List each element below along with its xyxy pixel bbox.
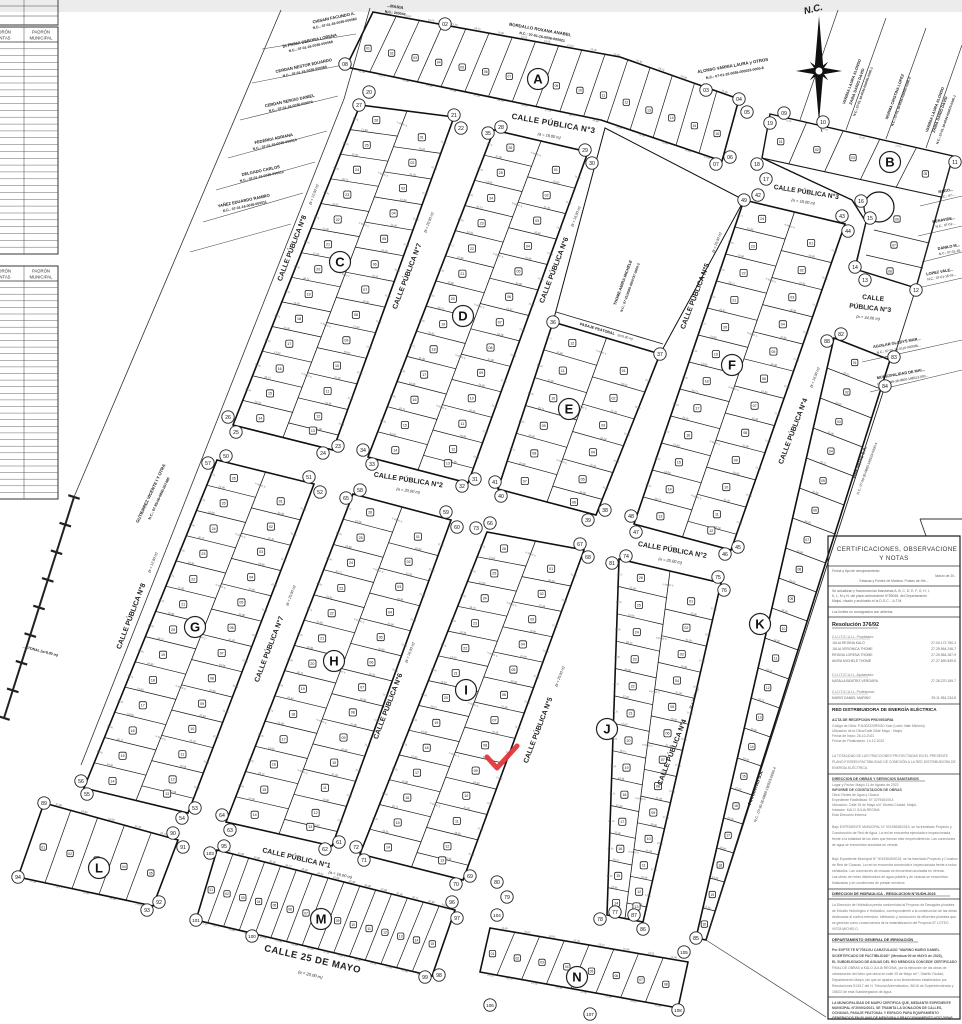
svg-text:19: 19: [710, 893, 714, 897]
svg-text:44: 44: [845, 229, 851, 235]
svg-text:155/22 de esta Subdelegación d: 155/22 de esta Subdelegación de Agua.: [832, 990, 892, 994]
svg-text:señalados. Las conexiones de c: señalados. Las conexiones de cloacas se …: [832, 869, 946, 873]
svg-text:09: 09: [342, 736, 346, 740]
svg-text:04: 04: [591, 451, 595, 455]
svg-text:06: 06: [762, 377, 766, 381]
svg-text:06: 06: [373, 263, 377, 267]
svg-text:EL SUBDELEGADO DE AGUAS DEL RI: EL SUBDELEGADO DE AGUAS DEL RIO MENDOZA …: [832, 960, 957, 964]
svg-text:NATALIA BEATRIZ VERGARA: NATALIA BEATRIZ VERGARA: [832, 679, 879, 683]
svg-text:12,00: 12,00: [610, 765, 617, 768]
svg-text:11: 11: [461, 422, 465, 426]
svg-text:12: 12: [570, 341, 574, 345]
svg-text:22: 22: [330, 612, 334, 616]
svg-text:27-25.564.287-9: 27-25.564.287-9: [931, 653, 956, 657]
svg-text:02: 02: [612, 396, 616, 400]
svg-text:07: 07: [805, 538, 809, 542]
svg-text:D: D: [458, 309, 467, 324]
svg-text:62: 62: [322, 847, 328, 853]
svg-text:05: 05: [379, 635, 383, 639]
svg-text:04: 04: [388, 610, 392, 614]
svg-text:97: 97: [454, 916, 460, 922]
svg-text:Expediente Factibilidad: N° 02: Expediente Factibilidad: N° 0279453/014: [832, 798, 894, 802]
svg-text:10: 10: [578, 89, 582, 93]
svg-text:04: 04: [122, 865, 126, 869]
svg-text:11: 11: [642, 864, 646, 868]
svg-text:Por EXPTE TE N°705119-I CARATU: Por EXPTE TE N°705119-I CARATULADO "MARI…: [832, 948, 940, 952]
svg-text:frente a la totalidad de los l: frente a la totalidad de los lotes que f…: [832, 837, 955, 841]
svg-text:CERTIFICACIONES, OBSERVACIONE: CERTIFICACIONES, OBSERVACIONE: [837, 546, 957, 553]
svg-text:52: 52: [317, 490, 323, 496]
svg-text:07: 07: [523, 479, 527, 483]
svg-text:101: 101: [192, 918, 200, 923]
svg-text:14: 14: [111, 779, 115, 783]
svg-text:02: 02: [407, 560, 411, 564]
svg-text:Obra: Redes de Agua y Cloaca: Obra: Redes de Agua y Cloaca: [832, 793, 879, 797]
svg-text:06: 06: [369, 661, 373, 665]
svg-text:08: 08: [351, 711, 355, 715]
svg-text:INFORME DE CONSTATACIÓN DE OBR: INFORME DE CONSTATACIÓN DE OBRAS: [832, 787, 902, 792]
svg-text:14: 14: [852, 265, 858, 271]
svg-text:81: 81: [609, 561, 615, 567]
svg-text:13: 13: [399, 935, 403, 939]
svg-text:106: 106: [486, 1003, 494, 1008]
svg-text:21: 21: [320, 637, 324, 641]
svg-text:01: 01: [689, 600, 693, 604]
svg-text:82: 82: [838, 332, 844, 338]
svg-text:REGINA LORENA THOME: REGINA LORENA THOME: [832, 653, 873, 657]
svg-text:51: 51: [306, 475, 312, 481]
svg-text:68: 68: [585, 555, 591, 561]
svg-text:Marzo de 20..: Marzo de 20..: [935, 574, 956, 578]
svg-text:09: 09: [542, 424, 546, 428]
svg-text:06: 06: [614, 974, 618, 978]
svg-text:21: 21: [629, 712, 633, 716]
svg-text:08: 08: [483, 744, 487, 748]
svg-text:13: 13: [658, 515, 662, 519]
svg-text:02: 02: [269, 525, 273, 529]
svg-text:13: 13: [165, 792, 169, 796]
svg-text:14: 14: [393, 449, 397, 453]
svg-text:55: 55: [84, 792, 90, 798]
svg-text:19: 19: [714, 352, 718, 356]
svg-text:28: 28: [498, 125, 504, 131]
svg-text:15: 15: [403, 423, 407, 427]
svg-text:15: 15: [430, 942, 434, 946]
svg-text:58: 58: [357, 488, 363, 494]
svg-text:18: 18: [754, 162, 760, 168]
svg-text:PADRÓN: PADRÓN: [0, 30, 11, 35]
svg-text:22: 22: [336, 218, 340, 222]
svg-text:80: 80: [494, 880, 500, 886]
svg-text:20: 20: [451, 297, 455, 301]
svg-text:JULIA REGINA KALO: JULIA REGINA KALO: [832, 641, 865, 645]
svg-text:41: 41: [492, 480, 498, 486]
svg-text:MUNICIPAL: MUNICIPAL: [29, 275, 53, 280]
svg-text:10: 10: [190, 727, 194, 731]
svg-text:27-27.690.839-5: 27-27.690.839-5: [931, 659, 956, 663]
svg-text:19: 19: [161, 653, 165, 657]
svg-text:38: 38: [602, 508, 608, 514]
svg-text:11: 11: [602, 93, 606, 97]
svg-text:37: 37: [657, 352, 663, 358]
svg-text:75: 75: [715, 575, 721, 581]
svg-text:09: 09: [555, 84, 559, 88]
svg-text:26: 26: [225, 415, 231, 421]
svg-text:12: 12: [316, 415, 320, 419]
svg-text:03: 03: [241, 896, 245, 900]
svg-text:03: 03: [703, 88, 709, 94]
svg-text:H: H: [329, 654, 338, 669]
svg-text:ENERGÍA ELÉCTRICA.: ENERGÍA ELÉCTRICA.: [832, 765, 868, 770]
svg-text:15: 15: [742, 775, 746, 779]
svg-text:Los límites no consignados son: Los límites no consignados son abiertos.: [832, 610, 893, 614]
svg-text:16: 16: [272, 763, 276, 767]
svg-text:Se actualizan y fraccionan las: Se actualizan y fraccionan las Manzanas …: [832, 589, 930, 593]
svg-text:Bajo EXPEDIENTE MUNICIPAL N° 0: Bajo EXPEDIENTE MUNICIPAL N° 00193638/20…: [832, 825, 952, 829]
svg-text:17: 17: [287, 342, 291, 346]
svg-text:24: 24: [760, 217, 764, 221]
svg-text:22: 22: [742, 271, 746, 275]
svg-text:12: 12: [314, 811, 318, 815]
svg-text:09: 09: [336, 919, 340, 923]
svg-text:K, L, M y N, del plano anteced: K, L, M y N, del plano antecedente N°590…: [832, 594, 927, 598]
svg-text:16: 16: [278, 367, 282, 371]
svg-text:10: 10: [335, 364, 339, 368]
svg-text:06: 06: [502, 693, 506, 697]
svg-text:13: 13: [311, 429, 315, 433]
svg-text:29-11.951.234-5: 29-11.951.234-5: [931, 696, 956, 700]
svg-text:11: 11: [326, 389, 330, 393]
svg-text:AKIRA MICHELE THOME: AKIRA MICHELE THOME: [832, 659, 872, 663]
svg-text:de Red de Cloacas. La red se e: de Red de Cloacas. La red se encuentra c…: [832, 863, 957, 867]
svg-text:06: 06: [484, 70, 488, 74]
svg-text:13: 13: [647, 108, 651, 112]
svg-text:03: 03: [680, 652, 684, 656]
svg-text:18: 18: [705, 379, 709, 383]
svg-text:S/CERTIFICADO DE FACTIBILIDAD": S/CERTIFICADO DE FACTIBILIDAD" (Mendoza …: [832, 954, 943, 958]
svg-text:04: 04: [781, 323, 785, 327]
svg-text:12: 12: [913, 288, 919, 294]
svg-text:Fecha de Finalización: 14-12-2: Fecha de Finalización: 14-12-2022: [832, 739, 884, 743]
svg-text:01: 01: [279, 500, 283, 504]
svg-text:10: 10: [351, 923, 355, 927]
svg-text:24: 24: [212, 527, 216, 531]
svg-text:03: 03: [837, 420, 841, 424]
svg-text:10: 10: [551, 397, 555, 401]
svg-text:16: 16: [858, 199, 864, 205]
svg-text:02: 02: [225, 892, 229, 896]
svg-text:48: 48: [628, 514, 634, 520]
svg-text:ACTA DE RECEPCION PROVISORIA: ACTA DE RECEPCION PROVISORIA: [832, 718, 894, 722]
svg-text:24: 24: [489, 196, 493, 200]
svg-text:99: 99: [422, 975, 428, 981]
svg-text:14: 14: [386, 846, 390, 850]
svg-text:67: 67: [577, 542, 583, 548]
svg-text:DEPARTAMENTO GENERAL DE IRRIGA: DEPARTAMENTO GENERAL DE IRRIGACIÓN: [832, 937, 913, 942]
svg-text:se generan como consecuencia d: se generan como consecuencia de la mater…: [832, 921, 949, 925]
svg-text:02: 02: [800, 268, 804, 272]
svg-text:25: 25: [233, 430, 239, 436]
svg-text:04: 04: [829, 449, 833, 453]
svg-text:21: 21: [732, 298, 736, 302]
svg-text:22: 22: [631, 685, 635, 689]
svg-text:03: 03: [397, 585, 401, 589]
svg-text:92: 92: [156, 900, 162, 906]
svg-text:C.U.I.T./C.U.I.L. Apoderado:: C.U.I.T./C.U.I.L. Apoderado:: [832, 673, 874, 677]
svg-text:05: 05: [273, 904, 277, 908]
svg-text:15: 15: [268, 392, 272, 396]
svg-text:04: 04: [257, 900, 261, 904]
svg-text:25,71: 25,71: [617, 573, 624, 576]
svg-text:03: 03: [601, 423, 605, 427]
svg-text:103: 103: [206, 851, 214, 856]
svg-text:20: 20: [366, 90, 372, 96]
svg-text:16: 16: [734, 804, 738, 808]
svg-text:02: 02: [815, 148, 819, 152]
svg-text:02: 02: [410, 161, 414, 165]
svg-text:01: 01: [420, 136, 424, 140]
svg-text:de Estudio Hidrológico e Hidrá: de Estudio Hidrológico e Hidráulico, cor…: [832, 909, 957, 913]
svg-text:06: 06: [288, 908, 292, 912]
svg-text:B: B: [885, 155, 894, 170]
svg-text:MUNICIPAL: MUNICIPAL: [29, 36, 53, 41]
svg-text:G: G: [190, 620, 200, 635]
svg-text:13: 13: [440, 859, 444, 863]
svg-text:25: 25: [222, 502, 226, 506]
svg-text:01: 01: [809, 241, 813, 245]
svg-text:108: 108: [674, 1008, 682, 1013]
svg-text:14: 14: [614, 901, 618, 905]
svg-text:06: 06: [666, 732, 670, 736]
svg-text:05: 05: [924, 172, 928, 176]
svg-text:18: 18: [622, 793, 626, 797]
svg-text:20: 20: [703, 922, 707, 926]
svg-text:95: 95: [221, 844, 227, 850]
svg-text:RENTAS: RENTAS: [0, 36, 11, 41]
svg-text:de agua se encuentran anuladas: de agua se encuentran anuladas en vereda…: [832, 843, 898, 847]
svg-text:32: 32: [459, 484, 465, 490]
svg-text:02: 02: [68, 852, 72, 856]
svg-text:42: 42: [755, 193, 761, 199]
svg-text:15: 15: [121, 754, 125, 758]
svg-text:12: 12: [709, 529, 713, 533]
svg-text:21: 21: [181, 603, 185, 607]
svg-text:07: 07: [360, 686, 364, 690]
svg-text:Resoluciones 513/17 del H. Tri: Resoluciones 513/17 del H. Tribunal Admi…: [832, 984, 954, 988]
svg-text:03: 03: [790, 296, 794, 300]
svg-text:105: 105: [680, 950, 688, 955]
svg-text:20: 20: [316, 268, 320, 272]
svg-text:10: 10: [470, 397, 474, 401]
svg-text:10: 10: [820, 120, 826, 126]
svg-text:31: 31: [472, 477, 478, 483]
svg-text:PADRÓN: PADRÓN: [32, 269, 50, 274]
svg-text:04: 04: [437, 61, 441, 65]
svg-text:12: 12: [766, 686, 770, 690]
svg-text:69: 69: [467, 874, 473, 880]
svg-text:25: 25: [492, 572, 496, 576]
svg-text:24,35: 24,35: [608, 820, 615, 823]
svg-text:07: 07: [493, 718, 497, 722]
svg-text:03: 03: [540, 961, 544, 965]
svg-text:33: 33: [369, 462, 375, 468]
svg-text:15: 15: [262, 788, 266, 792]
svg-text:34: 34: [360, 448, 366, 454]
svg-text:08: 08: [354, 313, 358, 317]
svg-text:02: 02: [390, 51, 394, 55]
svg-text:73: 73: [473, 526, 479, 532]
svg-text:88: 88: [824, 339, 830, 345]
svg-text:PLANO POSEEN FACTIBILIDAD DE C: PLANO POSEEN FACTIBILIDAD DE CONEXIÓN A …: [832, 759, 957, 764]
svg-text:20: 20: [627, 739, 631, 743]
svg-text:21: 21: [451, 113, 457, 119]
svg-text:10: 10: [647, 837, 651, 841]
svg-text:Las obras de redes distribuido: Las obras de redes distribuidora de agua…: [832, 875, 948, 879]
svg-text:04: 04: [675, 679, 679, 683]
svg-text:01: 01: [366, 47, 370, 51]
svg-text:05: 05: [771, 350, 775, 354]
svg-text:12,00: 12,00: [606, 875, 613, 878]
svg-text:78: 78: [597, 917, 603, 923]
svg-text:01: 01: [549, 567, 553, 571]
svg-text:23: 23: [751, 244, 755, 248]
svg-text:04: 04: [249, 575, 253, 579]
svg-text:30: 30: [589, 161, 595, 167]
svg-text:14: 14: [253, 813, 257, 817]
svg-text:12: 12: [383, 931, 387, 935]
svg-text:13: 13: [758, 716, 762, 720]
svg-text:02: 02: [845, 390, 849, 394]
svg-text:01: 01: [491, 952, 495, 956]
svg-text:21: 21: [454, 671, 458, 675]
svg-text:OCHAVAS, PASAJE PEATONAL Y ESP: OCHAVAS, PASAJE PEATONAL Y ESPACIO PARA …: [832, 1011, 939, 1015]
svg-text:01: 01: [779, 140, 783, 144]
svg-text:11: 11: [455, 819, 459, 823]
svg-text:12: 12: [624, 101, 628, 105]
svg-text:06: 06: [727, 155, 733, 161]
svg-text:23: 23: [345, 193, 349, 197]
svg-text:26: 26: [374, 118, 378, 122]
svg-text:23: 23: [339, 586, 343, 590]
svg-text:15: 15: [677, 461, 681, 465]
svg-text:MARIO DANIEL MARINO: MARIO DANIEL MARINO: [832, 696, 871, 700]
svg-text:04: 04: [521, 643, 525, 647]
svg-text:11: 11: [952, 160, 957, 166]
svg-text:16: 16: [715, 132, 719, 136]
svg-text:03: 03: [851, 156, 855, 160]
svg-text:27-28.270.159-7: 27-28.270.159-7: [931, 679, 956, 683]
svg-text:14: 14: [670, 116, 674, 120]
svg-text:17: 17: [282, 738, 286, 742]
svg-text:14: 14: [415, 938, 419, 942]
svg-text:07: 07: [507, 75, 511, 79]
svg-text:24,35: 24,35: [612, 710, 619, 713]
svg-text:13: 13: [446, 462, 450, 466]
svg-text:10: 10: [782, 627, 786, 631]
svg-text:10: 10: [464, 794, 468, 798]
svg-text:07: 07: [498, 321, 502, 325]
svg-text:17: 17: [415, 771, 419, 775]
svg-text:05: 05: [460, 65, 464, 69]
svg-text:25,71: 25,71: [613, 683, 620, 686]
svg-text:07: 07: [220, 651, 224, 655]
svg-text:100: 100: [248, 934, 256, 939]
svg-text:Y NOTAS: Y NOTAS: [879, 555, 908, 562]
svg-text:17: 17: [422, 373, 426, 377]
svg-text:09: 09: [474, 769, 478, 773]
svg-text:16: 16: [618, 847, 622, 851]
svg-text:C: C: [335, 255, 345, 270]
svg-text:07: 07: [304, 911, 308, 915]
svg-text:22: 22: [463, 646, 467, 650]
svg-text:urbanización del loteo que ubi: urbanización del loteo que ubica en call…: [832, 972, 944, 976]
svg-text:06: 06: [895, 217, 899, 221]
svg-text:05: 05: [149, 871, 153, 875]
svg-text:19: 19: [625, 766, 629, 770]
svg-text:47: 47: [633, 530, 639, 536]
svg-text:25: 25: [637, 603, 641, 607]
svg-text:08: 08: [489, 346, 493, 350]
svg-text:18: 18: [151, 678, 155, 682]
svg-text:07: 07: [661, 758, 665, 762]
svg-text:04: 04: [526, 244, 530, 248]
svg-text:07: 07: [713, 162, 719, 168]
svg-text:17: 17: [141, 704, 145, 708]
svg-text:15: 15: [867, 216, 873, 222]
svg-text:02: 02: [545, 194, 549, 198]
svg-text:Resolución 376/92: Resolución 376/92: [832, 622, 879, 628]
svg-text:E: E: [565, 402, 574, 417]
svg-text:12: 12: [637, 890, 641, 894]
svg-text:08: 08: [664, 983, 668, 987]
svg-text:26: 26: [502, 547, 506, 551]
svg-text:16: 16: [413, 398, 417, 402]
svg-text:07: 07: [892, 243, 896, 247]
svg-text:08: 08: [532, 452, 536, 456]
svg-text:74: 74: [623, 554, 629, 560]
svg-text:La Dirección de Hidráulica pre: La Dirección de Hidráulica presta confor…: [832, 903, 955, 907]
svg-text:25: 25: [499, 171, 503, 175]
svg-text:RED DISTRIBUIDORA DE ENERGÍA E: RED DISTRIBUIDORA DE ENERGÍA ELÉCTRICA: [832, 705, 937, 712]
svg-text:GENERADOS EN PLANO DE MENSURA: GENERADOS EN PLANO DE MENSURA Y FRACCION…: [832, 1016, 953, 1020]
svg-text:23: 23: [473, 622, 477, 626]
svg-text:09: 09: [781, 111, 787, 117]
svg-text:12: 12: [445, 845, 449, 849]
svg-text:14: 14: [750, 745, 754, 749]
svg-text:46: 46: [722, 552, 728, 558]
svg-text:27: 27: [356, 103, 362, 109]
svg-text:05: 05: [744, 110, 750, 116]
svg-text:45: 45: [735, 545, 741, 551]
svg-text:27-25.564.246-7: 27-25.564.246-7: [931, 647, 956, 651]
svg-text:14: 14: [258, 417, 262, 421]
svg-text:21: 21: [326, 243, 330, 247]
svg-text:18: 18: [718, 863, 722, 867]
svg-text:22: 22: [470, 247, 474, 251]
svg-text:104: 104: [493, 913, 501, 918]
svg-text:04: 04: [736, 97, 742, 103]
svg-text:18: 18: [425, 746, 429, 750]
svg-text:PADRÓN: PADRÓN: [0, 269, 11, 274]
svg-text:09: 09: [479, 371, 483, 375]
svg-text:07: 07: [363, 288, 367, 292]
svg-text:60: 60: [454, 525, 460, 531]
svg-text:03: 03: [535, 219, 539, 223]
svg-text:01: 01: [622, 369, 626, 373]
svg-text:LA MUNICIPALIDAD DE MAIPÚ CERT: LA MUNICIPALIDAD DE MAIPÚ CERTIFICA QUE,…: [832, 1000, 952, 1005]
svg-text:F: F: [728, 358, 736, 373]
svg-text:85: 85: [693, 936, 699, 942]
